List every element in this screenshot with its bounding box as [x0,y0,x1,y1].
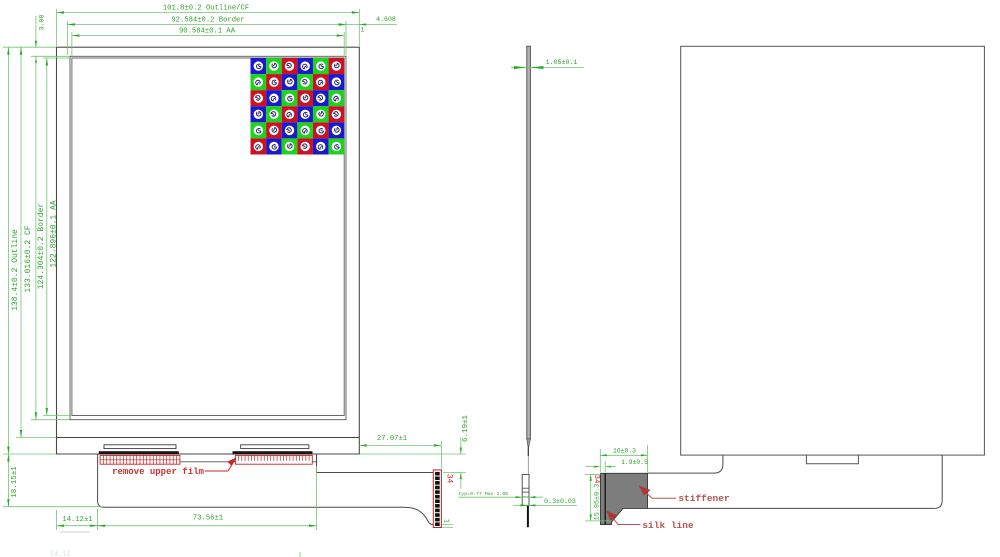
svg-text:92.584±0.2 Border: 92.584±0.2 Border [171,17,244,25]
svg-text:silk line: silk line [642,520,694,531]
svg-text:18.15±1: 18.15±1 [11,466,19,498]
svg-text:138.4±0.2 Outline: 138.4±0.2 Outline [11,229,20,311]
svg-text:1: 1 [442,519,450,523]
svg-text:101.8±0.2 Outline/CF: 101.8±0.2 Outline/CF [163,5,249,13]
svg-text:3.08: 3.08 [39,15,46,31]
svg-text:34: 34 [445,474,454,484]
svg-text:typ=0.77 Max 1.05: typ=0.77 Max 1.05 [458,491,508,497]
svg-text:stiffener: stiffener [678,493,730,504]
svg-text:14.12: 14.12 [49,551,70,557]
svg-text:34: 34 [592,474,600,484]
svg-text:1.9±0.5: 1.9±0.5 [621,459,648,466]
svg-text:122.896±0.1 AA: 122.896±0.1 AA [49,200,58,267]
svg-text:6.19±1: 6.19±1 [462,415,470,443]
svg-text:14.12±1: 14.12±1 [62,516,92,524]
svg-text:73.56±1: 73.56±1 [193,515,223,523]
svg-text:124.304±0.2 Border: 124.304±0.2 Border [37,203,46,290]
svg-text:4.608: 4.608 [376,16,396,23]
svg-text:16±0.3: 16±0.3 [613,448,636,455]
svg-text:27.07±1: 27.07±1 [377,435,407,443]
svg-text:1: 1 [361,27,365,34]
svg-text:15.95±0.3: 15.95±0.3 [593,484,601,521]
svg-text:1.05±0.1: 1.05±0.1 [546,59,578,66]
svg-text:90.584±0.1 AA: 90.584±0.1 AA [179,27,236,35]
svg-text:remove upper film: remove upper film [112,467,204,477]
svg-text:0.3±0.03: 0.3±0.03 [544,498,576,505]
svg-text:133.016±0.2 CF: 133.016±0.2 CF [24,225,33,292]
